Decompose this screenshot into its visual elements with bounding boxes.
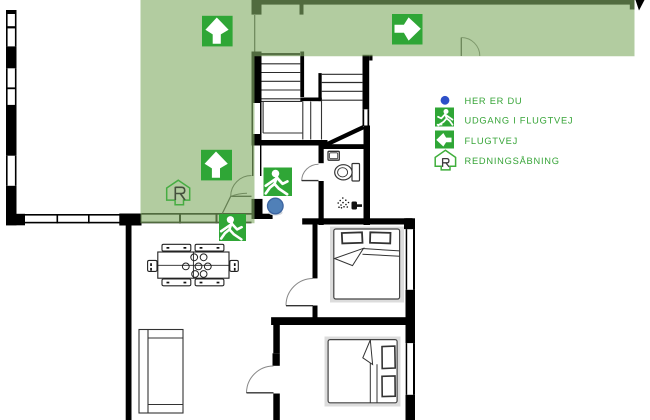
svg-text:REDNINGSÅBNING: REDNINGSÅBNING xyxy=(465,155,560,166)
svg-text:UDGANG I FLUGTVEJ: UDGANG I FLUGTVEJ xyxy=(465,116,574,126)
svg-text:FLUGTVEJ: FLUGTVEJ xyxy=(465,136,519,146)
svg-text:HER ER DU: HER ER DU xyxy=(465,96,523,106)
